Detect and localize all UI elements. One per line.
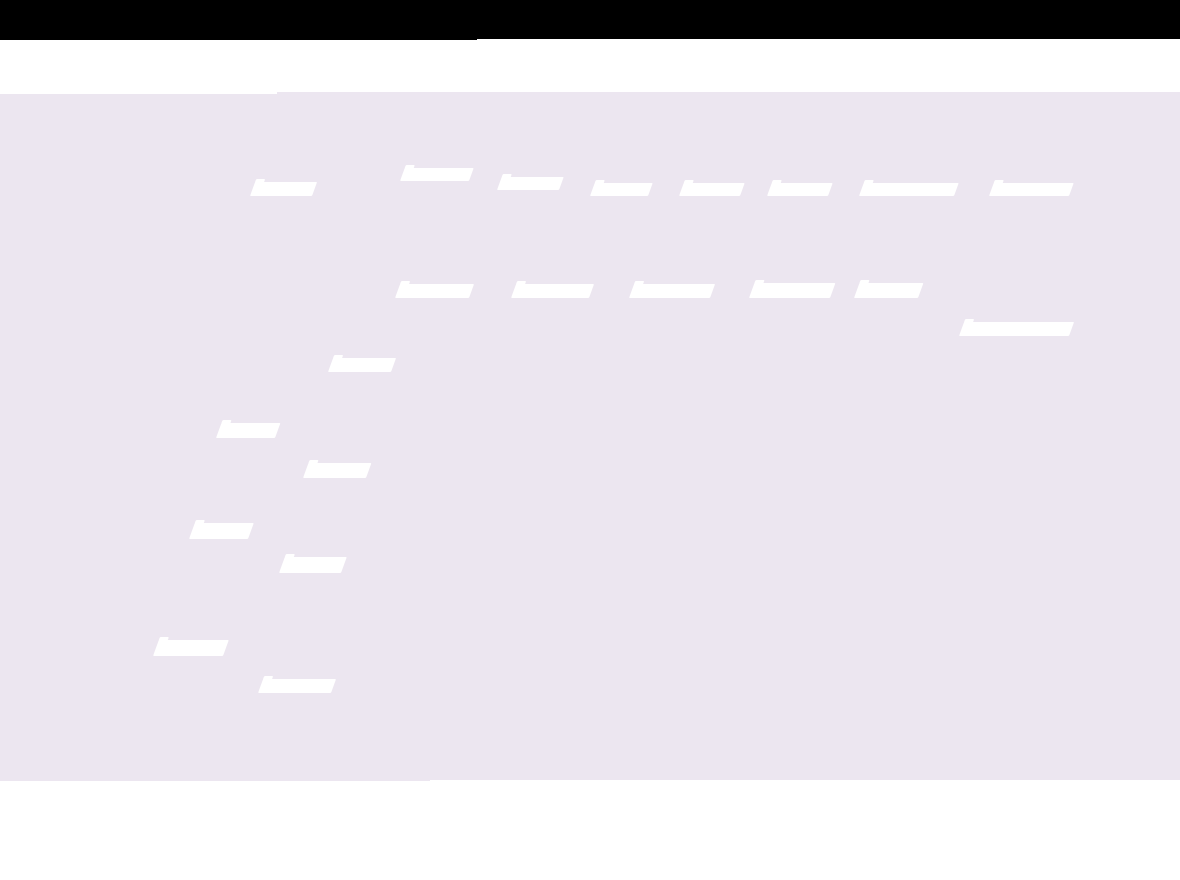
redacted-map-label <box>189 523 254 539</box>
redacted-map-label <box>749 283 835 298</box>
redacted-map-label <box>395 284 474 298</box>
redacted-map-label <box>679 183 745 196</box>
redacted-map-label <box>590 183 653 196</box>
redacted-map-label <box>303 463 371 478</box>
footer-area <box>0 781 1180 880</box>
map-left-panel-top-seam <box>0 92 277 94</box>
redacted-map-label <box>989 183 1074 196</box>
redacted-map-label <box>511 284 594 298</box>
app-window <box>0 0 1180 880</box>
toolbar-strip <box>0 40 1180 92</box>
redacted-map-label <box>629 284 715 298</box>
redacted-map-label <box>216 423 280 438</box>
redacted-map-label <box>153 640 229 656</box>
redacted-map-label <box>959 322 1074 336</box>
redacted-map-label <box>767 183 833 196</box>
redacted-map-label <box>250 182 317 196</box>
redacted-map-label <box>258 679 336 693</box>
app-header-bar <box>0 0 1180 39</box>
redacted-map-label <box>328 358 396 372</box>
map-canvas[interactable] <box>0 92 1180 780</box>
redacted-map-label <box>400 168 474 181</box>
redacted-map-label <box>854 283 923 298</box>
redacted-map-label <box>279 557 347 573</box>
redacted-map-label <box>859 183 959 196</box>
redacted-map-label <box>497 177 564 190</box>
